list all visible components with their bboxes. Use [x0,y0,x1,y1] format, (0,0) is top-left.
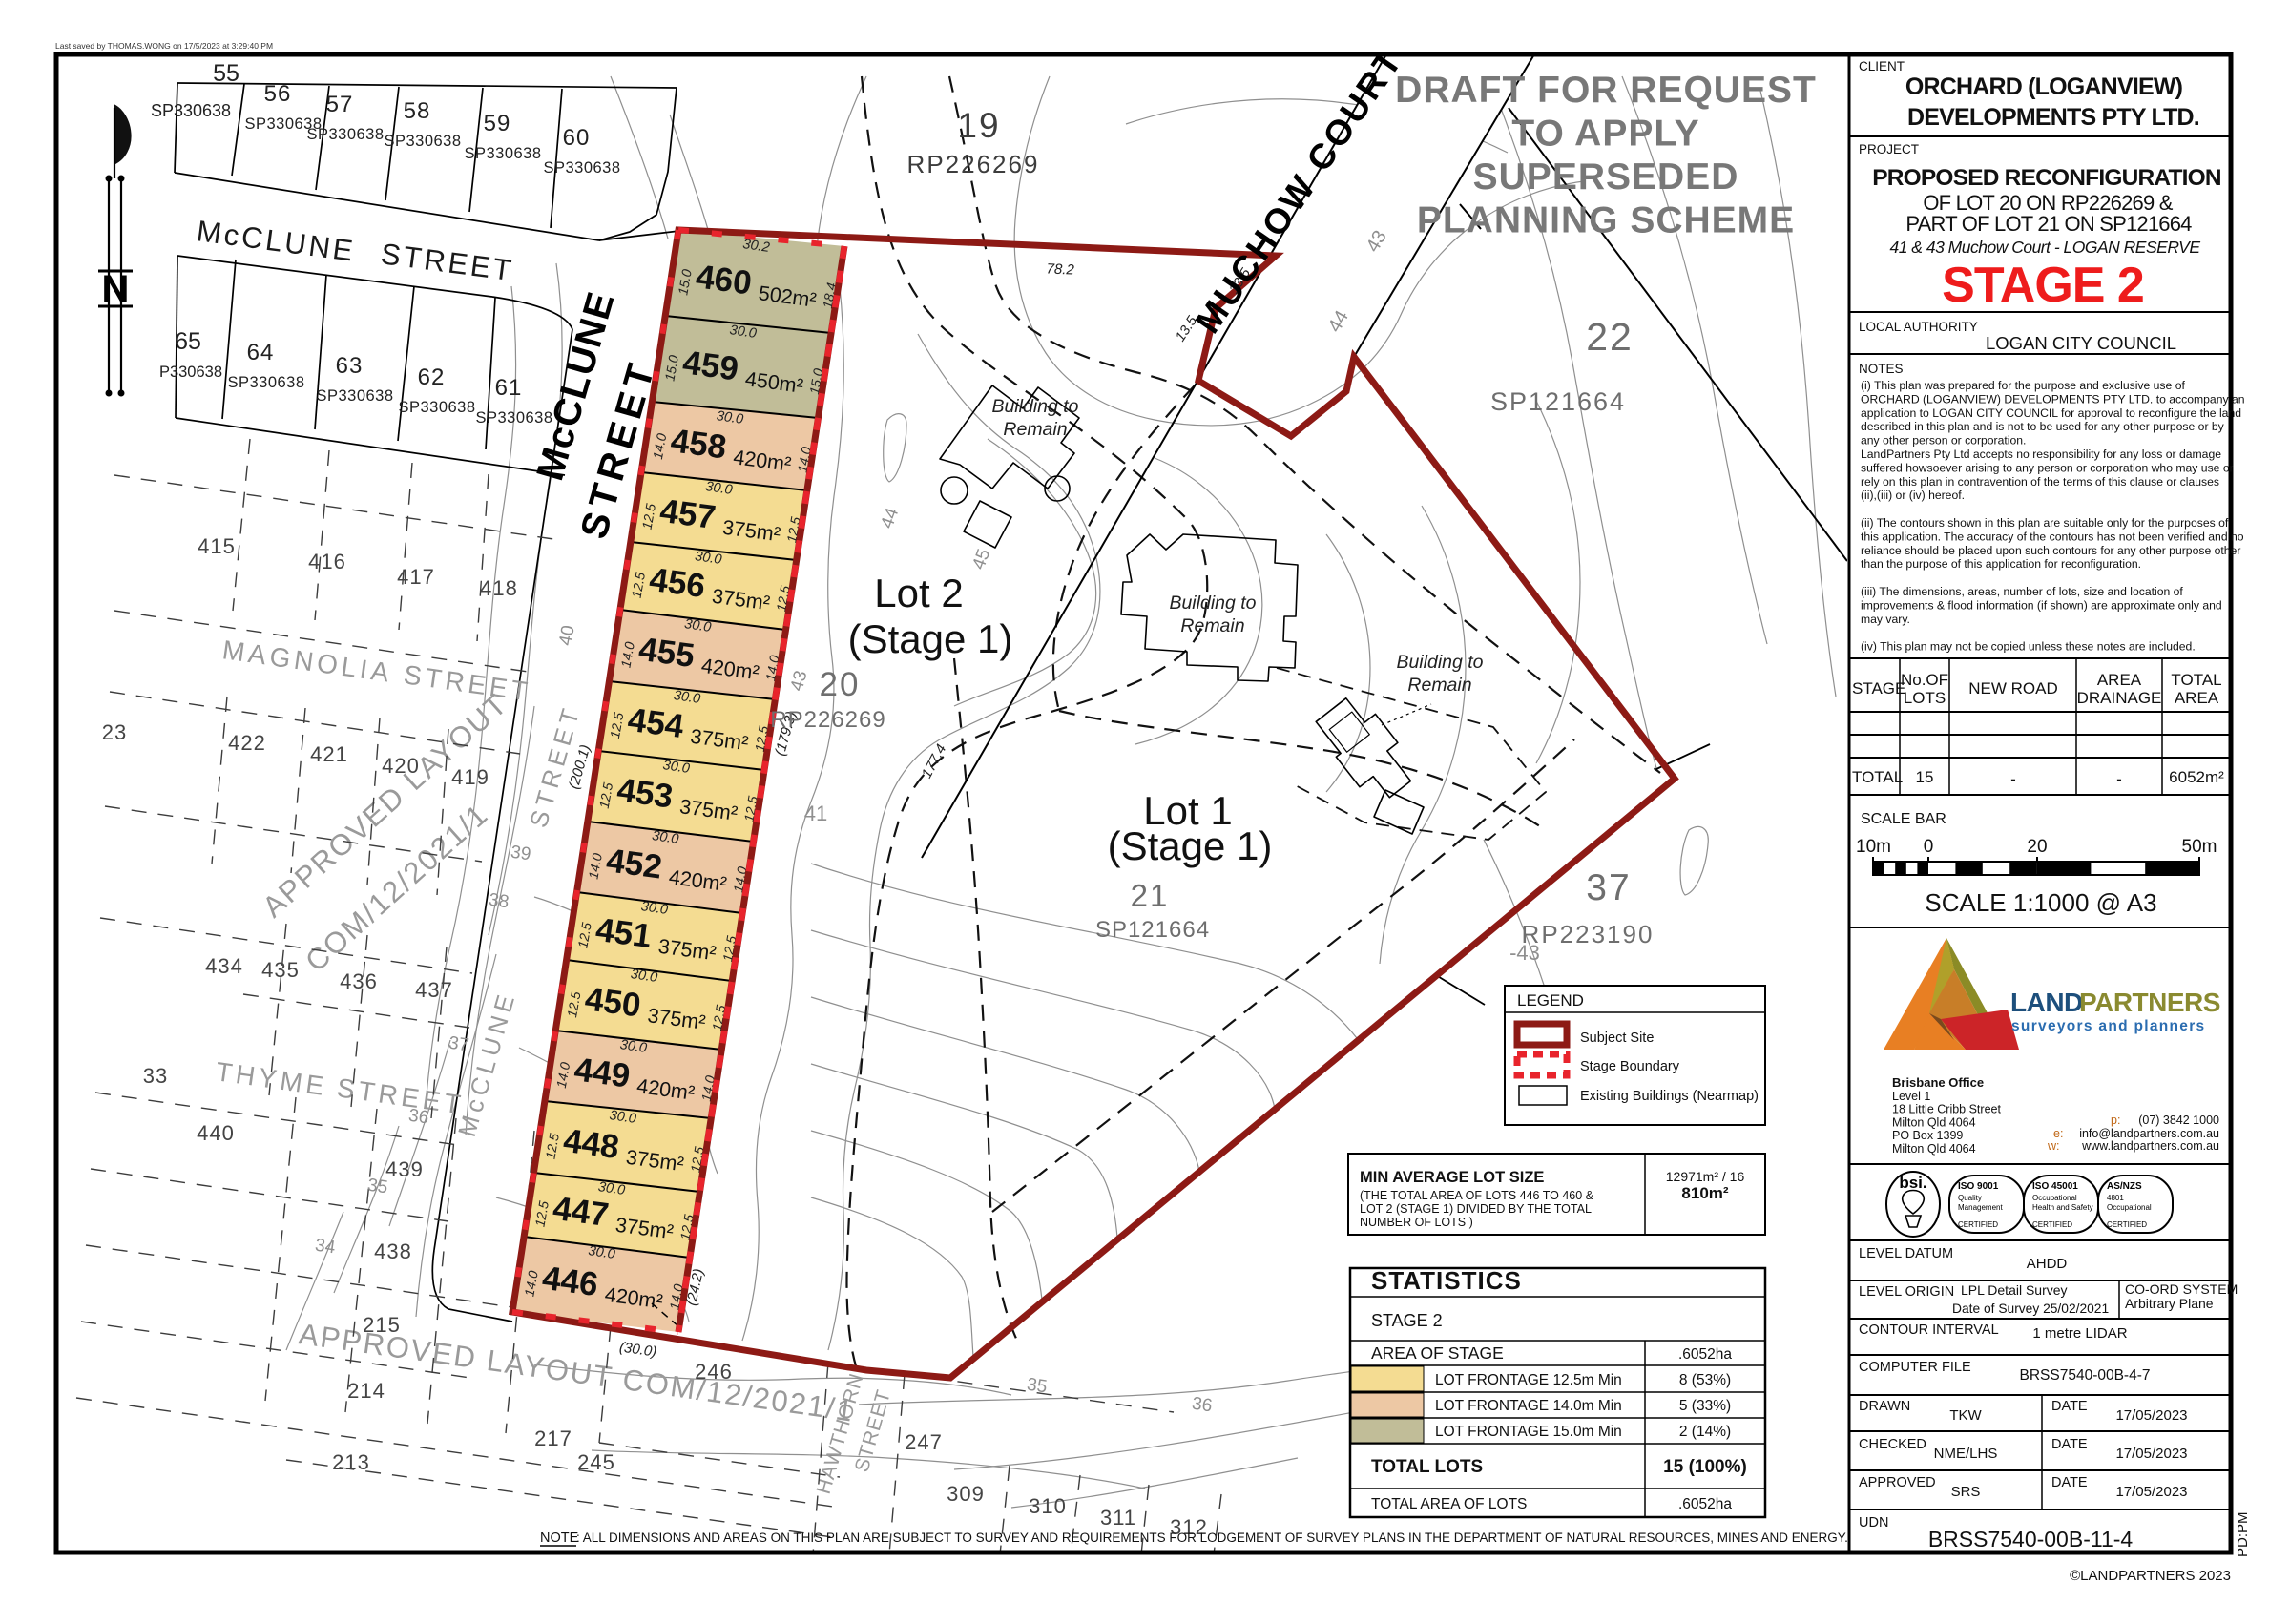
svg-text:w:: w: [2047,1139,2060,1153]
svg-text:17/05/2023: 17/05/2023 [2115,1407,2187,1424]
svg-text:SCALE BAR: SCALE BAR [1861,811,1946,827]
svg-text:CONTOUR INTERVAL: CONTOUR INTERVAL [1859,1322,1999,1338]
svg-text:LPL Detail Survey: LPL Detail Survey [1961,1282,2068,1298]
svg-text:ORCHARD (LOGANVIEW) DEVELOPMEN: ORCHARD (LOGANVIEW) DEVELOPMENTS PTY LTD… [1861,392,2245,406]
svg-text:CO-ORD SYSTEM: CO-ORD SYSTEM [2125,1281,2238,1297]
svg-text:STAGE: STAGE [1852,679,1905,697]
svg-text:Occupational: Occupational [2107,1203,2152,1212]
svg-text:Quality: Quality [1958,1194,1982,1202]
svg-text:17/05/2023: 17/05/2023 [2115,1446,2187,1462]
svg-text:2 (14%): 2 (14%) [1679,1424,1731,1440]
svg-text:NME/LHS: NME/LHS [1934,1446,1998,1462]
svg-text:bsi.: bsi. [1899,1174,1926,1192]
svg-text:460: 460 [694,258,754,302]
svg-text:RP226269: RP226269 [770,707,885,733]
svg-text:Level 1: Level 1 [1892,1090,1930,1103]
svg-text:416: 416 [308,550,346,573]
svg-text:439: 439 [385,1157,424,1181]
svg-text:4801: 4801 [2107,1194,2124,1202]
svg-text:LOT FRONTAGE 14.0m Min: LOT FRONTAGE 14.0m Min [1435,1398,1622,1414]
svg-text:AS/NZS: AS/NZS [2107,1181,2142,1192]
svg-text:surveyors and planners: surveyors and planners [2011,1018,2205,1034]
svg-text:247: 247 [905,1430,943,1454]
svg-text:BRSS7540-00B-4-7: BRSS7540-00B-4-7 [2020,1367,2151,1384]
svg-text:0: 0 [1924,837,1934,857]
svg-text:19: 19 [957,106,1000,145]
svg-text:PD:PM: PD:PM [2235,1511,2251,1557]
svg-text:421: 421 [310,742,348,766]
svg-text:436: 436 [340,969,378,993]
svg-text:40: 40 [555,624,578,647]
svg-text:456: 456 [647,561,707,605]
svg-text:311: 311 [1100,1506,1136,1530]
svg-text:Subject Site: Subject Site [1580,1031,1654,1046]
svg-text:e:: e: [2053,1127,2063,1140]
svg-text:-: - [2116,770,2122,788]
svg-text:LOTS: LOTS [1904,689,1946,707]
svg-text:1 metre LIDAR: 1 metre LIDAR [2032,1325,2127,1342]
svg-text:434: 434 [205,954,243,978]
svg-text:Remain: Remain [1407,675,1471,696]
svg-text:215: 215 [363,1313,401,1337]
svg-text:437: 437 [415,978,453,1002]
svg-text:PLANNING SCHEME: PLANNING SCHEME [1417,200,1795,241]
svg-text:TOTAL AREA OF LOTS: TOTAL AREA OF LOTS [1371,1496,1527,1512]
svg-text:8 (53%): 8 (53%) [1679,1372,1731,1388]
svg-text:17/05/2023: 17/05/2023 [2115,1484,2187,1500]
svg-text:DRAINAGE: DRAINAGE [2077,689,2162,707]
svg-text:Building to: Building to [1169,593,1256,614]
svg-text:: ALL DIMENSIONS AND AREAS ON: : ALL DIMENSIONS AND AREAS ON THIS PLAN … [576,1530,1848,1545]
svg-text:449: 449 [572,1051,633,1094]
svg-text:NEW ROAD: NEW ROAD [1968,679,2058,697]
svg-text:LOT FRONTAGE 12.5m Min: LOT FRONTAGE 12.5m Min [1435,1372,1622,1388]
svg-text:AREA: AREA [2097,671,2142,689]
svg-text:Health and Safety: Health and Safety [2032,1203,2093,1212]
svg-text:420: 420 [382,754,420,778]
svg-text:12971m² / 16: 12971m² / 16 [1666,1169,1745,1184]
svg-text:23: 23 [102,720,127,744]
svg-text:LOT 2 (STAGE 1) DIVIDED BY THE: LOT 2 (STAGE 1) DIVIDED BY THE TOTAL [1360,1202,1592,1216]
svg-text:35: 35 [1026,1375,1049,1398]
svg-text:20: 20 [820,666,861,703]
svg-text:38: 38 [488,890,510,913]
svg-text:6052m²: 6052m² [2169,768,2224,786]
svg-text:(iii) The dimensions, areas, n: (iii) The dimensions, areas, number of l… [1861,585,2183,598]
svg-text:65: 65 [175,328,201,355]
svg-text:(ii) The contours shown in thi: (ii) The contours shown in this plan are… [1861,516,2229,530]
svg-text:214: 214 [347,1379,385,1403]
svg-text:p:: p: [2111,1114,2120,1127]
svg-text:CLIENT: CLIENT [1859,59,1905,73]
svg-text:Remain: Remain [1003,419,1067,440]
svg-text:PARTNERS: PARTNERS [2079,988,2220,1017]
svg-text:(07) 3842 1000: (07) 3842 1000 [2138,1114,2219,1127]
svg-text:SP121664: SP121664 [1095,917,1210,943]
svg-text:451: 451 [593,911,654,955]
svg-text:213: 213 [332,1450,370,1474]
svg-text:www.landpartners.com.au: www.landpartners.com.au [2081,1139,2219,1153]
svg-text:Milton Qld 4064: Milton Qld 4064 [1892,1115,1976,1129]
svg-text:SCALE 1:1000 @ A3: SCALE 1:1000 @ A3 [1925,888,2156,917]
svg-text:DATE: DATE [2051,1475,2088,1490]
svg-text:453: 453 [614,771,675,815]
svg-text:(i) This plan was prepared for: (i) This plan was prepared for the purpo… [1861,379,2185,392]
svg-text:LEVEL ORIGIN: LEVEL ORIGIN [1859,1284,1954,1300]
svg-text:CERTIFIED: CERTIFIED [1958,1220,1998,1229]
svg-text:57: 57 [326,92,354,117]
svg-text:SP330638: SP330638 [464,145,541,162]
svg-text:PROPOSED RECONFIGURATION: PROPOSED RECONFIGURATION [1872,165,2221,191]
svg-text:COMPUTER FILE: COMPUTER FILE [1859,1360,1971,1375]
svg-text:DATE: DATE [2051,1399,2088,1414]
svg-text:63: 63 [336,353,364,379]
svg-text:LOCAL AUTHORITY: LOCAL AUTHORITY [1859,320,1978,334]
svg-text:37: 37 [448,1033,470,1056]
svg-text:61: 61 [495,375,523,401]
svg-text:10m: 10m [1856,837,1891,857]
svg-text:CERTIFIED: CERTIFIED [2107,1220,2147,1229]
svg-text:Management: Management [1958,1203,2003,1212]
svg-text:Stage Boundary: Stage Boundary [1580,1059,1680,1074]
svg-text:MIN AVERAGE LOT SIZE: MIN AVERAGE LOT SIZE [1360,1169,1544,1186]
svg-text:447: 447 [551,1190,611,1234]
svg-text:50m: 50m [2182,837,2217,857]
svg-text:41: 41 [804,802,827,825]
svg-text:rely on this plan in contrave: rely on this plan in contravention of th… [1861,475,2219,489]
svg-text:DATE: DATE [2051,1437,2088,1452]
svg-text:15 (100%): 15 (100%) [1663,1457,1747,1477]
svg-text:CERTIFIED: CERTIFIED [2032,1220,2072,1229]
svg-text:SP330638: SP330638 [398,399,475,416]
svg-text:CHECKED: CHECKED [1859,1437,1926,1452]
svg-text:56: 56 [264,81,292,107]
svg-text:Building to: Building to [991,396,1078,417]
svg-text:438: 438 [374,1239,412,1263]
svg-text:SP330638: SP330638 [384,133,461,150]
svg-text:TOTAL: TOTAL [1852,768,1903,786]
svg-text:Milton Qld 4064: Milton Qld 4064 [1892,1142,1976,1156]
svg-text:59: 59 [484,111,511,136]
svg-text:419: 419 [451,765,489,789]
svg-text:39: 39 [510,843,532,865]
svg-text:SUPERSEDED: SUPERSEDED [1473,156,1739,198]
svg-text:ISO 9001: ISO 9001 [1958,1181,1999,1192]
svg-text:AREA OF STAGE: AREA OF STAGE [1371,1343,1504,1363]
svg-text:36: 36 [407,1106,430,1129]
svg-text:NUMBER OF LOTS ): NUMBER OF LOTS ) [1360,1216,1473,1229]
svg-text:.6052ha: .6052ha [1678,1346,1732,1363]
svg-text:PROJECT: PROJECT [1859,142,1919,156]
svg-text:458: 458 [669,422,729,466]
svg-text:309: 309 [947,1482,985,1506]
svg-text:LEGEND: LEGEND [1517,991,1584,1010]
svg-text:Remain: Remain [1180,615,1244,636]
svg-text:440: 440 [197,1121,235,1145]
svg-text:459: 459 [680,344,740,387]
svg-text:455: 455 [636,631,697,675]
svg-text:©LANDPARTNERS 2023: ©LANDPARTNERS 2023 [2070,1568,2231,1584]
svg-text:TKW: TKW [1949,1407,1982,1424]
svg-text:LandPartners Pty Ltd accepts n: LandPartners Pty Ltd accepts no responsi… [1861,448,2221,461]
svg-text:TO APPLY: TO APPLY [1511,114,1699,155]
svg-text:SRS: SRS [1951,1484,1981,1500]
svg-text:SP330638: SP330638 [227,374,304,391]
svg-text:310: 310 [1029,1494,1067,1518]
svg-text:SP330638: SP330638 [543,159,620,177]
svg-text:446: 446 [540,1260,600,1303]
svg-text:55: 55 [213,60,239,87]
svg-text:APPROVED: APPROVED [1859,1475,1936,1490]
svg-text:Occupational: Occupational [2032,1194,2077,1202]
svg-text:(Stage 1): (Stage 1) [848,616,1013,661]
svg-text:(THE TOTAL AREA OF LOTS 446 TO: (THE TOTAL AREA OF LOTS 446 TO 460 & [1360,1189,1594,1202]
svg-text:457: 457 [657,492,718,536]
svg-text:(ii),(iii) or (iv) hereof.: (ii),(iii) or (iv) hereof. [1861,489,1965,502]
svg-text:5 (33%): 5 (33%) [1679,1398,1731,1414]
svg-text:TOTAL: TOTAL [2171,671,2221,689]
svg-text:any other person or corporatio: any other person or corporation. [1861,434,2026,448]
svg-text:41 & 43 Muchow Court - LOGAN R: 41 & 43 Muchow Court - LOGAN RESERVE [1889,238,2200,257]
svg-text:-: - [2010,770,2016,788]
svg-text:P330638: P330638 [159,364,222,381]
svg-text:810m²: 810m² [1681,1184,1728,1202]
svg-text:DEVELOPMENTS PTY LTD.: DEVELOPMENTS PTY LTD. [1907,104,2199,131]
svg-text:No.OF: No.OF [1901,671,1948,689]
svg-text:422: 422 [228,731,266,755]
svg-text:than the purpose of this appli: than the purpose of this application for… [1861,557,2141,571]
svg-text:N: N [102,268,130,310]
svg-text:Existing Buildings (Nearmap): Existing Buildings (Nearmap) [1580,1089,1759,1104]
svg-text:20: 20 [2027,837,2047,857]
svg-text:STAGE 2: STAGE 2 [1371,1311,1443,1330]
svg-text:DRAFT FOR REQUEST: DRAFT FOR REQUEST [1395,70,1817,111]
svg-text:62: 62 [418,364,446,390]
svg-text:36: 36 [1191,1394,1214,1417]
svg-text:PO Box 1399: PO Box 1399 [1892,1129,1963,1142]
svg-text:SP330638: SP330638 [475,409,552,427]
svg-text:described in this plan and is: described in this plan and is not to be … [1861,420,2225,433]
svg-text:448: 448 [561,1122,621,1166]
svg-text:Building to: Building to [1396,652,1483,673]
svg-text:NOTE: NOTE [540,1530,579,1546]
svg-text:info@landpartners.com.au: info@landpartners.com.au [2079,1127,2219,1140]
svg-text:217: 217 [534,1426,572,1450]
svg-text:34: 34 [314,1236,337,1259]
svg-text:STATISTICS: STATISTICS [1371,1266,1522,1295]
svg-text:AHDD: AHDD [2027,1256,2068,1272]
svg-text:64: 64 [247,340,275,365]
svg-text:245: 245 [577,1450,615,1474]
svg-text:SP330638: SP330638 [316,387,393,405]
svg-text:NOTES: NOTES [1859,362,1904,376]
svg-text:LOT FRONTAGE 15.0m Min: LOT FRONTAGE 15.0m Min [1435,1424,1622,1440]
svg-text:RP226269: RP226269 [907,150,1040,178]
svg-text:AREA: AREA [2175,689,2219,707]
svg-text:78.2: 78.2 [1046,260,1075,278]
svg-text:435: 435 [261,958,300,982]
svg-text:ISO 45001: ISO 45001 [2032,1181,2078,1192]
svg-text:Brisbane Office: Brisbane Office [1892,1075,1984,1090]
svg-text:RP223190: RP223190 [1522,920,1655,948]
svg-text:DRAWN: DRAWN [1859,1399,1910,1414]
svg-text:454: 454 [626,701,687,745]
svg-text:this application. The accuracy: this application. The accuracy of the co… [1861,530,2244,543]
svg-text:LOGAN CITY COUNCIL: LOGAN CITY COUNCIL [1986,333,2176,353]
svg-text:Lot 2: Lot 2 [874,571,963,615]
svg-text:452: 452 [604,842,664,885]
svg-text:LAND: LAND [2010,988,2083,1017]
svg-text:BRSS7540-00B-11-4: BRSS7540-00B-11-4 [1928,1527,2134,1551]
svg-text:15: 15 [1916,768,1934,786]
svg-text:33: 33 [143,1064,168,1088]
svg-text:SP121664: SP121664 [1490,387,1626,416]
svg-text:246: 246 [695,1360,733,1384]
svg-text:reliance should be placed upon: reliance should be placed upon such cont… [1861,544,2240,557]
svg-text:TOTAL LOTS: TOTAL LOTS [1371,1457,1483,1477]
svg-text:(iv) This plan may not be copi: (iv) This plan may not be copied unless … [1861,640,2196,654]
svg-text:LEVEL DATUM: LEVEL DATUM [1859,1246,1953,1261]
svg-text:450: 450 [583,980,643,1024]
svg-text:suffered howsoever arising to: suffered howsoever arising to any person… [1861,461,2234,474]
svg-text:18 Little Cribb Street: 18 Little Cribb Street [1892,1103,2001,1116]
svg-text:22: 22 [1586,315,1634,359]
svg-text:ORCHARD (LOGANVIEW): ORCHARD (LOGANVIEW) [1905,73,2183,100]
svg-text:(Stage 1): (Stage 1) [1108,823,1273,868]
svg-text:35: 35 [366,1176,389,1198]
svg-text:417: 417 [397,565,435,589]
svg-text:37: 37 [1586,867,1631,908]
svg-text:Last saved by THOMAS.WONG on 1: Last saved by THOMAS.WONG on 17/5/2023 a… [55,41,273,51]
svg-text:STAGE 2: STAGE 2 [1942,258,2144,313]
svg-text:may vary.: may vary. [1861,613,1910,626]
svg-text:58: 58 [404,98,431,124]
svg-text:60: 60 [563,125,591,151]
svg-text:.6052ha: .6052ha [1678,1496,1732,1512]
svg-text:SP330638: SP330638 [151,101,231,120]
svg-text:PART OF LOT 21 ON SP121664: PART OF LOT 21 ON SP121664 [1905,212,2192,236]
svg-text:SP330638: SP330638 [306,126,384,143]
svg-text:415: 415 [198,534,236,558]
svg-text:application to LOGAN CITY COUN: application to LOGAN CITY COUNCIL for ap… [1861,406,2241,420]
svg-text:Date of Survey 25/02/2021: Date of Survey 25/02/2021 [1952,1301,2109,1316]
svg-text:418: 418 [480,576,518,600]
svg-text:21: 21 [1131,878,1170,913]
svg-text:UDN: UDN [1859,1515,1888,1530]
svg-text:improvements & flood informati: improvements & flood information (if sho… [1861,598,2222,612]
svg-text:Arbitrary Plane: Arbitrary Plane [2125,1296,2214,1311]
